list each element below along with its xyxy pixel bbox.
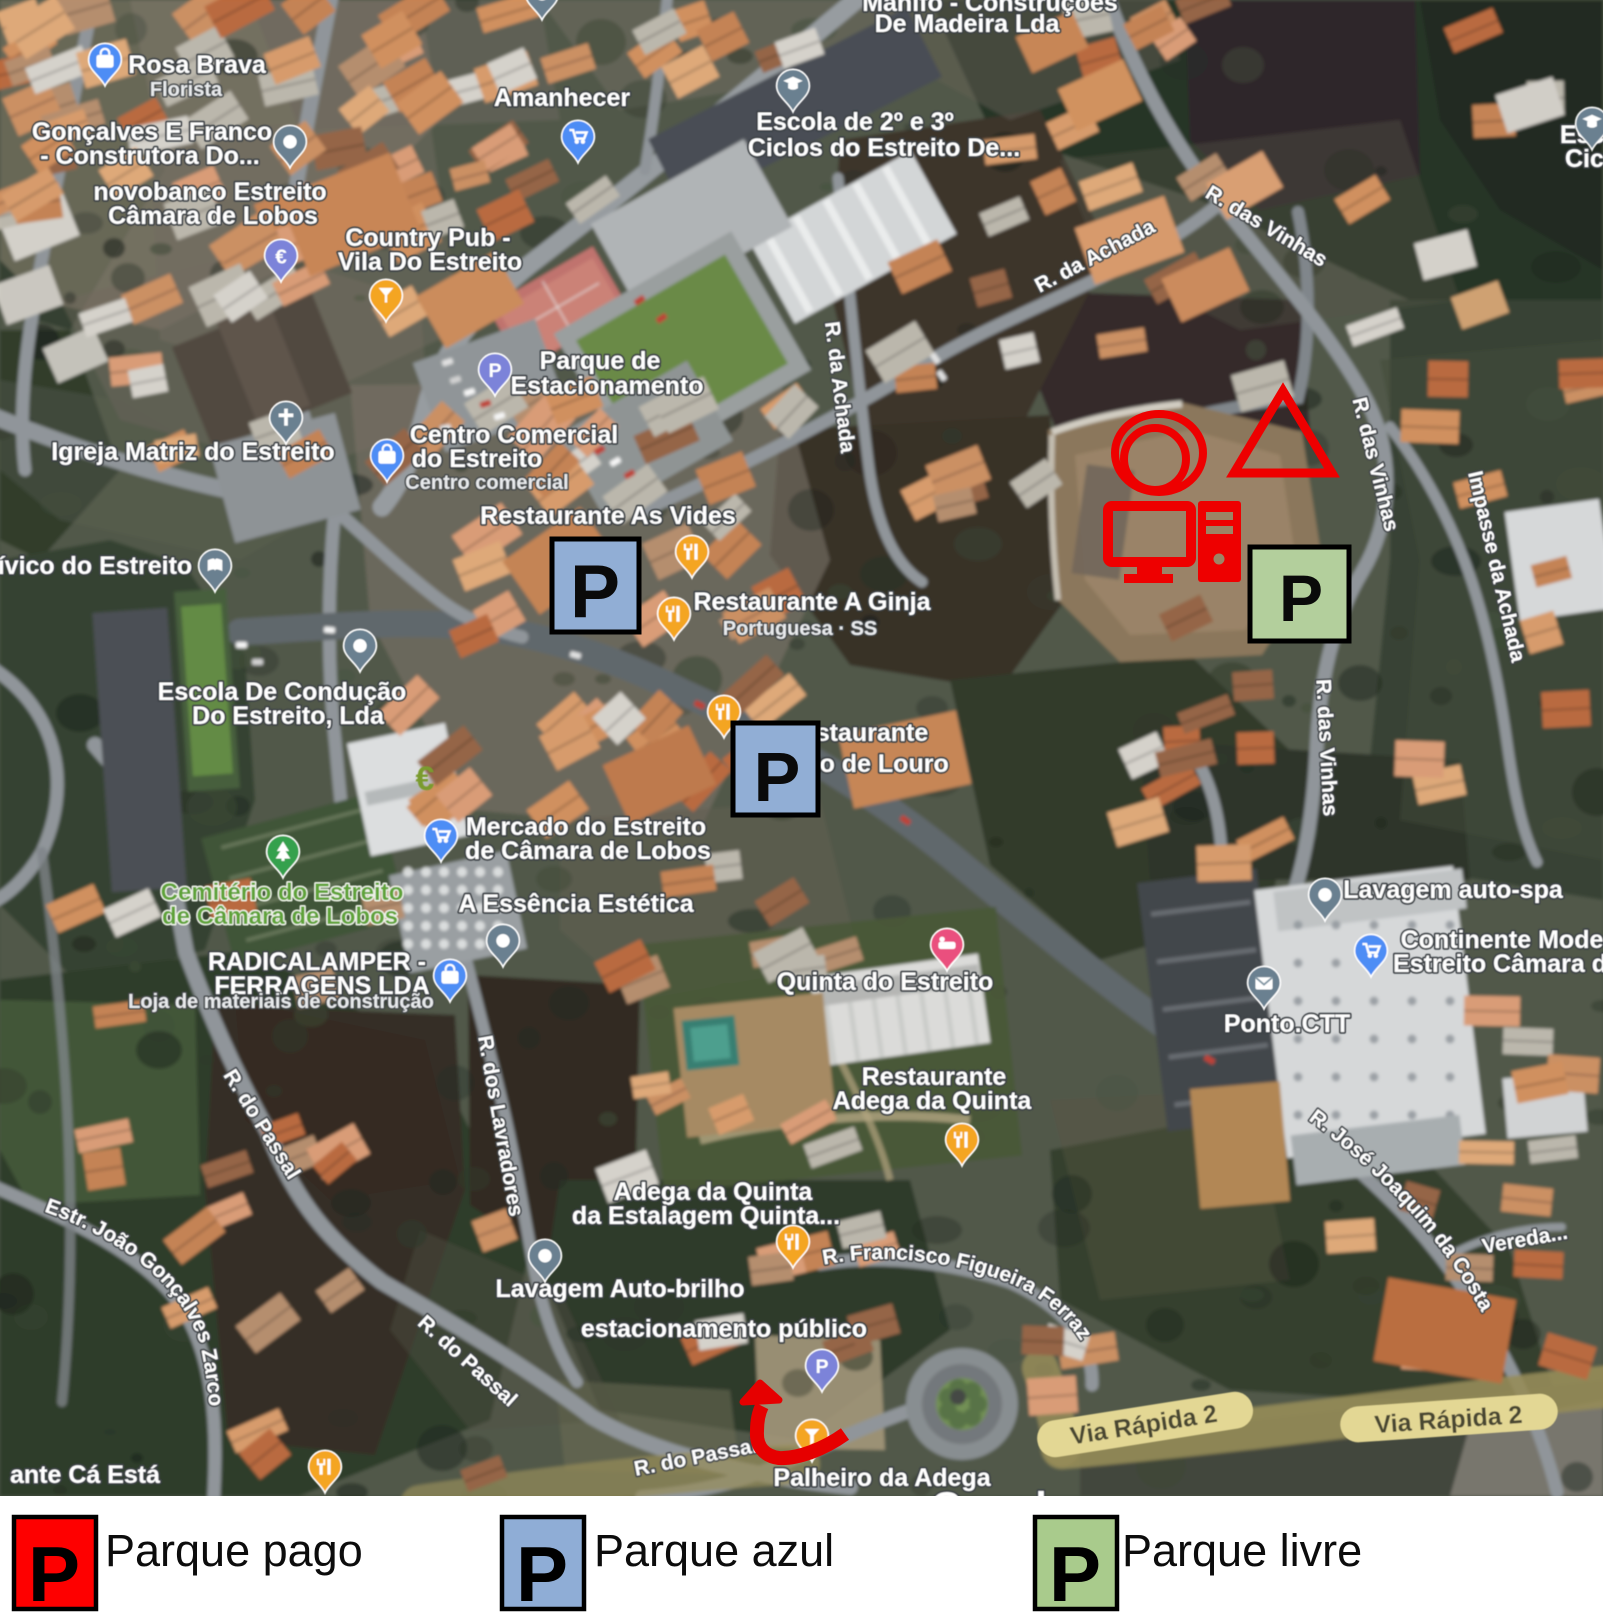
svg-text:Parque azul: Parque azul — [594, 1525, 834, 1576]
svg-text:estacionamento público: estacionamento público — [581, 1315, 867, 1343]
svg-text:Florista: Florista — [150, 79, 223, 101]
svg-text:Restaurante A Ginja: Restaurante A Ginja — [693, 588, 931, 616]
svg-text:Rosa Brava: Rosa Brava — [128, 51, 267, 79]
svg-text:P: P — [815, 1356, 828, 1378]
svg-text:ante Cá Está: ante Cá Está — [10, 1461, 160, 1489]
svg-text:Do Estreito, Lda: Do Estreito, Lda — [192, 702, 385, 730]
svg-text:de Câmara de Lobos: de Câmara de Lobos — [162, 903, 398, 930]
svg-text:Ponto.CTT: Ponto.CTT — [1224, 1010, 1350, 1038]
svg-text:Câmara de Lobos: Câmara de Lobos — [108, 202, 318, 230]
svg-text:Restaurante As Vides: Restaurante As Vides — [480, 502, 736, 530]
svg-text:de Câmara de Lobos: de Câmara de Lobos — [465, 837, 711, 865]
svg-text:Parque pago: Parque pago — [105, 1525, 363, 1576]
svg-text:Lavagem auto-spa: Lavagem auto-spa — [1343, 876, 1564, 904]
svg-text:Lavagem Auto-brilho: Lavagem Auto-brilho — [495, 1275, 744, 1303]
svg-text:Quinta do Estreito: Quinta do Estreito — [777, 968, 994, 996]
svg-text:Parque de: Parque de — [540, 347, 661, 375]
svg-text:Loja de materiais de construçã: Loja de materiais de construção — [128, 991, 434, 1013]
svg-text:De Madeira Lda: De Madeira Lda — [875, 10, 1061, 38]
svg-text:Amanhecer: Amanhecer — [494, 84, 630, 112]
svg-text:Ciclos: Ciclos — [1565, 145, 1603, 173]
svg-text:cívico do Estreito: cívico do Estreito — [0, 552, 192, 580]
svg-text:P: P — [754, 738, 801, 816]
svg-text:Cemitério do Estreito: Cemitério do Estreito — [161, 879, 404, 906]
svg-text:P: P — [1279, 561, 1323, 635]
svg-text:€: € — [275, 246, 287, 269]
svg-text:do Estreito: do Estreito — [412, 445, 543, 473]
svg-text:P: P — [570, 549, 620, 633]
svg-text:to de Louro: to de Louro — [811, 750, 948, 778]
svg-text:Igreja Matriz do Estreito: Igreja Matriz do Estreito — [51, 438, 334, 466]
svg-text:Estreito Câmara d: Estreito Câmara d — [1393, 950, 1603, 978]
svg-text:P: P — [488, 360, 501, 382]
svg-text:Vila Do Estreito: Vila Do Estreito — [338, 248, 522, 276]
svg-text:€: € — [416, 760, 435, 798]
svg-text:P: P — [1049, 1530, 1101, 1612]
svg-text:P: P — [516, 1530, 568, 1612]
svg-text:P: P — [28, 1530, 80, 1612]
svg-text:Parque livre: Parque livre — [1122, 1525, 1362, 1576]
svg-text:Adega da Quinta: Adega da Quinta — [833, 1087, 1033, 1115]
svg-text:- Construtora Do...: - Construtora Do... — [40, 142, 259, 170]
svg-text:Portuguesa · SS: Portuguesa · SS — [723, 618, 877, 640]
svg-text:da Estalagem Quinta...: da Estalagem Quinta... — [572, 1202, 840, 1230]
svg-text:Ciclos do Estreito De...: Ciclos do Estreito De... — [748, 134, 1020, 162]
svg-text:Estacionamento: Estacionamento — [510, 372, 703, 400]
svg-text:Centro comercial: Centro comercial — [405, 472, 568, 494]
svg-text:A Essência Estética: A Essência Estética — [458, 890, 694, 918]
svg-text:Escola de 2º e 3º: Escola de 2º e 3º — [756, 108, 954, 136]
